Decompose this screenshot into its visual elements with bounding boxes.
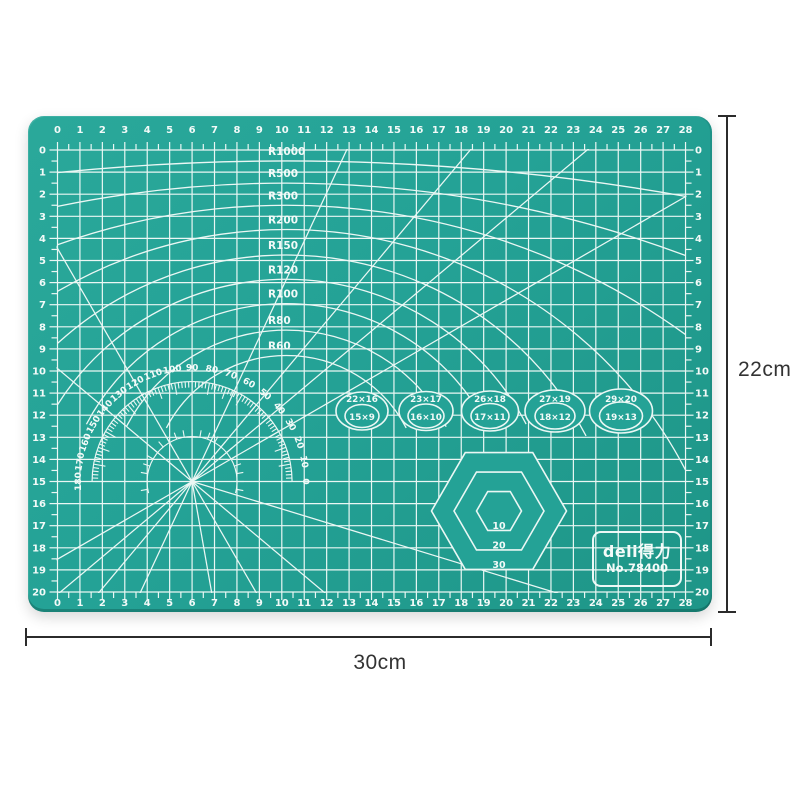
radius-arc-label: R200 xyxy=(268,215,298,227)
brand-plate: deli得力 No.78400 xyxy=(592,531,682,587)
protractor-tick xyxy=(125,407,129,411)
protractor-tick xyxy=(182,382,183,388)
ellipse-outer-label: 23×17 xyxy=(410,395,442,405)
protractor-inner-tick xyxy=(221,442,225,447)
ruler-number-bottom: 17 xyxy=(432,598,446,609)
degree-label: 120 xyxy=(125,375,146,393)
ruler-number-right: 19 xyxy=(695,565,709,576)
ruler-number-top: 24 xyxy=(589,125,603,136)
ruler-number-right: 12 xyxy=(695,411,709,422)
height-dimension-label: 22cm xyxy=(738,358,791,382)
protractor-tick xyxy=(286,471,292,472)
protractor-tick xyxy=(165,385,167,391)
ruler-number-right: 2 xyxy=(695,190,702,201)
ruler-number-right: 6 xyxy=(695,278,702,289)
ruler-number-left: 4 xyxy=(39,234,46,245)
protractor-tick xyxy=(107,429,112,432)
protractor-tick xyxy=(245,399,248,404)
protractor-tick xyxy=(275,447,286,451)
protractor-inner-tick xyxy=(174,433,176,440)
ruler-number-bottom: 16 xyxy=(409,598,423,609)
protractor-tick xyxy=(218,385,220,391)
ellipse-template: 23×1716×10 xyxy=(399,392,453,431)
protractor-tick xyxy=(94,464,106,466)
protractor-tick xyxy=(285,468,291,469)
protractor-tick xyxy=(279,464,291,466)
ellipse-outer-label: 26×18 xyxy=(474,395,506,405)
ellipse-template: 29×2019×13 xyxy=(590,389,653,433)
ruler-number-bottom: 21 xyxy=(522,598,536,609)
ruler-number-bottom: 0 xyxy=(54,598,61,609)
protractor-tick xyxy=(250,403,254,408)
ruler-number-right: 7 xyxy=(695,300,702,311)
ellipse-template: 26×1817×11 xyxy=(462,391,519,431)
degree-label: 90 xyxy=(186,364,199,374)
protractor-tick xyxy=(136,399,139,404)
ruler-number-bottom: 19 xyxy=(477,598,491,609)
hexagon-label: 30 xyxy=(492,560,506,571)
ruler-number-top: 1 xyxy=(76,125,83,136)
ruler-number-left: 20 xyxy=(32,588,46,599)
protractor-inner-tick xyxy=(152,448,157,452)
ruler-number-left: 14 xyxy=(32,455,46,466)
protractor-tick xyxy=(277,438,282,441)
degree-label: 40 xyxy=(271,401,287,417)
protractor-tick xyxy=(270,426,275,429)
ruler-number-top: 8 xyxy=(233,125,240,136)
hexagon-label: 20 xyxy=(492,541,506,552)
protractor-tick xyxy=(139,397,142,402)
ruler-number-bottom: 7 xyxy=(211,598,218,609)
model-number-text: No.78400 xyxy=(606,563,668,575)
ruler-number-right: 10 xyxy=(695,367,709,378)
ruler-number-top: 13 xyxy=(342,125,356,136)
degree-label: 30 xyxy=(282,417,297,433)
ruler-number-top: 6 xyxy=(189,125,196,136)
ruler-number-bottom: 14 xyxy=(365,598,379,609)
protractor-tick xyxy=(283,457,289,458)
ruler-number-top: 4 xyxy=(144,125,151,136)
protractor-tick xyxy=(111,423,116,427)
ruler-number-bottom: 5 xyxy=(166,598,173,609)
ruler-number-right: 14 xyxy=(695,455,709,466)
ruler-number-left: 1 xyxy=(39,168,46,179)
radius-arc xyxy=(58,279,527,424)
product-photo-stage: R1000R500R300R200R150R120R100R80R6001020… xyxy=(0,0,800,800)
protractor-tick xyxy=(205,382,206,388)
ruler-number-top: 26 xyxy=(634,125,648,136)
ruler-number-bottom: 26 xyxy=(634,598,648,609)
ruler-number-bottom: 9 xyxy=(256,598,263,609)
ruler-number-bottom: 20 xyxy=(499,598,513,609)
ruler-number-left: 10 xyxy=(32,367,46,378)
radius-arc-label: R100 xyxy=(268,289,298,301)
ruler-number-left: 2 xyxy=(39,190,46,201)
ruler-number-top: 25 xyxy=(611,125,625,136)
angle-ray xyxy=(0,0,192,482)
protractor-tick xyxy=(255,407,259,411)
protractor-tick xyxy=(109,426,114,429)
protractor-tick xyxy=(171,384,172,390)
ruler-number-left: 19 xyxy=(32,565,46,576)
ruler-number-top: 2 xyxy=(99,125,106,136)
protractor-tick xyxy=(131,403,135,408)
protractor-tick xyxy=(284,461,290,462)
protractor-tick xyxy=(161,386,163,392)
ruler-number-bottom: 2 xyxy=(99,598,106,609)
mat-markings-canvas: R1000R500R300R200R150R120R100R80R6001020… xyxy=(0,0,800,800)
ruler-number-left: 0 xyxy=(39,146,46,157)
ruler-number-bottom: 15 xyxy=(387,598,401,609)
protractor-inner-tick xyxy=(231,456,237,460)
ruler-number-top: 14 xyxy=(365,125,379,136)
protractor-tick xyxy=(95,457,101,458)
ellipse-inner-label: 18×12 xyxy=(539,413,571,423)
ruler-number-top: 18 xyxy=(454,125,468,136)
ruler-number-left: 9 xyxy=(39,344,46,355)
protractor-tick xyxy=(115,417,124,425)
ellipse-outer-label: 29×20 xyxy=(605,395,637,405)
protractor-inner-tick xyxy=(234,464,241,466)
ellipse-inner-label: 17×11 xyxy=(474,413,506,423)
ruler-number-bottom: 18 xyxy=(454,598,468,609)
protractor-inner-tick xyxy=(183,430,184,437)
ruler-number-right: 17 xyxy=(695,521,709,532)
ruler-number-top: 27 xyxy=(656,125,670,136)
ruler-number-bottom: 13 xyxy=(342,598,356,609)
degree-label: 180 xyxy=(74,472,84,491)
ruler-number-right: 20 xyxy=(695,588,709,599)
ruler-number-right: 1 xyxy=(695,168,702,179)
ruler-number-bottom: 25 xyxy=(611,598,625,609)
protractor-tick xyxy=(128,405,136,414)
angle-ray xyxy=(0,482,192,800)
protractor-tick xyxy=(221,386,223,392)
protractor-tick xyxy=(278,441,283,443)
ruler-number-left: 5 xyxy=(39,256,46,267)
hexagon-templates: 102030 xyxy=(432,453,567,571)
protractor-tick xyxy=(113,420,118,424)
ruler-number-left: 7 xyxy=(39,300,46,311)
radius-arc-label: R80 xyxy=(268,315,291,327)
ruler-number-top: 15 xyxy=(387,125,401,136)
ruler-number-top: 19 xyxy=(477,125,491,136)
ruler-number-bottom: 28 xyxy=(679,598,693,609)
ellipse-template: 27×1918×12 xyxy=(525,390,585,432)
protractor-tick xyxy=(93,468,99,469)
protractor-tick xyxy=(268,423,273,427)
radius-arc-label: R1000 xyxy=(268,146,305,158)
ruler-number-bottom: 10 xyxy=(275,598,289,609)
ruler-number-left: 13 xyxy=(32,433,46,444)
radius-arc-label: R500 xyxy=(268,168,298,180)
protractor-tick xyxy=(96,454,102,456)
ruler-number-top: 10 xyxy=(275,125,289,136)
ellipse-inner-label: 15×9 xyxy=(349,413,375,423)
protractor-tick xyxy=(94,461,100,462)
protractor-tick xyxy=(93,471,99,472)
ruler-number-top: 11 xyxy=(297,125,311,136)
ruler-number-left: 17 xyxy=(32,521,46,532)
protractor-tick xyxy=(242,397,245,402)
protractor-tick xyxy=(202,382,203,388)
ruler-number-bottom: 12 xyxy=(320,598,334,609)
protractor-tick xyxy=(247,401,251,406)
width-dimension-label: 30cm xyxy=(0,651,760,675)
ruler-number-top: 17 xyxy=(432,125,446,136)
angle-ray xyxy=(0,482,192,800)
ruler-number-top: 22 xyxy=(544,125,558,136)
ellipse-inner-label: 16×10 xyxy=(410,413,442,423)
ruler-number-bottom: 23 xyxy=(566,598,580,609)
ruler-number-top: 7 xyxy=(211,125,218,136)
degree-label: 100 xyxy=(162,364,182,377)
ruler-number-left: 3 xyxy=(39,212,46,223)
ruler-number-bottom: 8 xyxy=(233,598,240,609)
ruler-number-right: 18 xyxy=(695,543,709,554)
ellipse-outer-label: 27×19 xyxy=(539,395,571,405)
degree-label: 170 xyxy=(74,452,87,472)
protractor-inner-tick xyxy=(207,433,209,440)
radius-arc-label: R150 xyxy=(268,240,298,252)
degree-label: 80 xyxy=(205,364,219,376)
protractor-tick xyxy=(249,405,257,414)
ruler-number-bottom: 3 xyxy=(121,598,128,609)
protractor-tick xyxy=(133,401,137,406)
ruler-number-left: 12 xyxy=(32,411,46,422)
protractor-tick xyxy=(266,420,271,424)
degree-label: 10 xyxy=(297,455,309,469)
ruler-number-right: 13 xyxy=(695,433,709,444)
ruler-number-top: 16 xyxy=(409,125,423,136)
ruler-number-top: 28 xyxy=(679,125,693,136)
protractor-inner-tick xyxy=(159,442,163,447)
ellipse-template: 22×1615×9 xyxy=(336,392,388,430)
ruler-number-left: 6 xyxy=(39,278,46,289)
ellipse-inner-label: 19×13 xyxy=(605,413,637,423)
ruler-number-top: 23 xyxy=(566,125,580,136)
ruler-number-right: 5 xyxy=(695,256,702,267)
brand-logo-text: deli得力 xyxy=(603,544,671,560)
ruler-number-top: 12 xyxy=(320,125,334,136)
protractor-inner-tick xyxy=(147,456,153,460)
protractor-inner-tick xyxy=(200,430,201,437)
ruler-number-right: 3 xyxy=(695,212,702,223)
protractor-inner-tick xyxy=(227,448,232,452)
ruler-number-right: 15 xyxy=(695,477,709,488)
radius-arc-label: R60 xyxy=(268,341,291,353)
angle-ray xyxy=(0,482,192,800)
protractor-tick xyxy=(272,429,277,432)
ruler-number-left: 8 xyxy=(39,322,46,333)
radius-arc-label: R120 xyxy=(268,264,298,276)
protractor-tick xyxy=(212,384,213,390)
protractor-inner-tick xyxy=(143,464,150,466)
ruler-number-left: 18 xyxy=(32,543,46,554)
ruler-number-right: 9 xyxy=(695,344,702,355)
angle-ray xyxy=(0,0,192,482)
ruler-number-right: 11 xyxy=(695,389,709,400)
ruler-number-left: 15 xyxy=(32,477,46,488)
degree-label: 0 xyxy=(300,478,310,484)
ruler-number-top: 3 xyxy=(121,125,128,136)
protractor-tick xyxy=(178,382,179,388)
ruler-number-right: 4 xyxy=(695,234,702,245)
ruler-number-bottom: 6 xyxy=(189,598,196,609)
ruler-number-bottom: 22 xyxy=(544,598,558,609)
ruler-number-left: 11 xyxy=(32,389,46,400)
ruler-number-bottom: 27 xyxy=(656,598,670,609)
angle-ray xyxy=(0,482,192,800)
ruler-number-top: 20 xyxy=(499,125,513,136)
ruler-number-top: 5 xyxy=(166,125,173,136)
ruler-number-bottom: 24 xyxy=(589,598,603,609)
ruler-number-bottom: 11 xyxy=(297,598,311,609)
ruler-number-right: 0 xyxy=(695,146,702,157)
ruler-number-right: 16 xyxy=(695,499,709,510)
ruler-number-top: 0 xyxy=(54,125,61,136)
protractor-tick xyxy=(101,441,106,443)
ruler-number-top: 21 xyxy=(522,125,536,136)
degree-label: 60 xyxy=(241,376,257,391)
radius-arc-label: R300 xyxy=(268,190,298,202)
ruler-number-left: 16 xyxy=(32,499,46,510)
protractor-tick xyxy=(98,447,109,451)
ellipse-outer-label: 22×16 xyxy=(346,395,378,405)
hexagon-label: 10 xyxy=(492,521,506,532)
protractor-tick xyxy=(259,417,268,425)
ruler-number-bottom: 1 xyxy=(76,598,83,609)
protractor-tick xyxy=(282,454,288,456)
protractor-tick xyxy=(102,438,107,441)
ruler-number-top: 9 xyxy=(256,125,263,136)
ruler-number-right: 8 xyxy=(695,322,702,333)
ruler-number-bottom: 4 xyxy=(144,598,151,609)
